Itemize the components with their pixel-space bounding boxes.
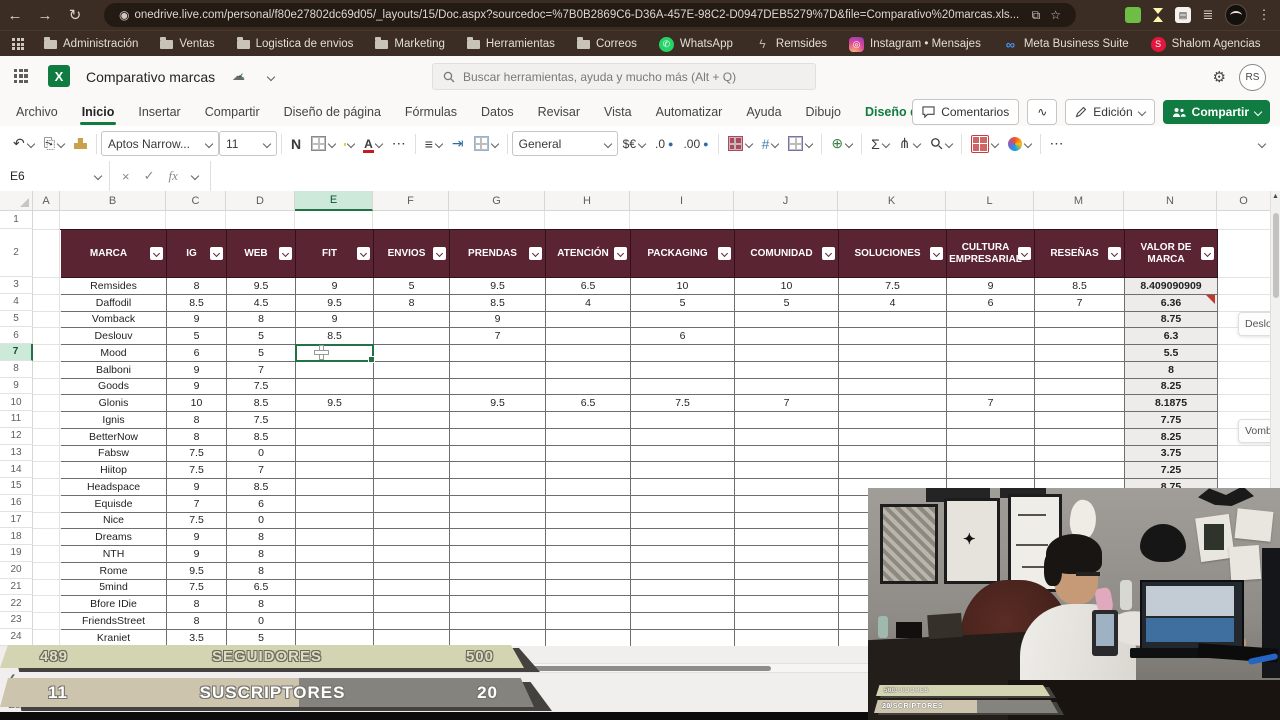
cell-I15[interactable] [631,479,735,496]
cell-F6[interactable] [374,328,450,345]
cell-I11[interactable] [631,412,735,429]
row-header-21[interactable]: 21 [0,579,33,596]
cell-G9[interactable] [450,379,546,396]
tracking-protection-icon[interactable]: ◉ [119,8,129,22]
filter-button[interactable] [614,247,627,260]
cell-M8[interactable] [1035,362,1125,379]
cell-C13[interactable]: 7.5 [167,446,227,463]
cell-G18[interactable] [450,529,546,546]
cell-B4[interactable]: Daffodil [61,295,167,312]
column-header-J[interactable]: J [734,191,838,211]
cell-I24[interactable] [631,630,735,647]
cell-M7[interactable] [1035,345,1125,362]
tab-insertar[interactable]: Insertar [136,101,182,123]
cell-G13[interactable] [450,446,546,463]
row-header-10[interactable]: 10 [0,394,33,411]
cell-L9[interactable] [947,379,1035,396]
cell-H17[interactable] [546,513,631,530]
cell-E8[interactable] [296,362,374,379]
cell-E18[interactable] [296,529,374,546]
extension-hourglass-icon[interactable] [1150,7,1166,23]
cell-G21[interactable] [450,580,546,597]
tab-fórmulas[interactable]: Fórmulas [403,101,459,123]
cell-H8[interactable] [546,362,631,379]
cell-K7[interactable] [839,345,947,362]
cell-E3[interactable]: 9 [296,278,374,295]
conditional-formatting-button[interactable]: # [757,136,784,152]
settings-gear-icon[interactable]: ⚙ [1213,68,1226,86]
cell-D20[interactable]: 8 [227,563,296,580]
cell-E4[interactable]: 9.5 [296,295,374,312]
cell-D19[interactable]: 8 [227,546,296,563]
cell-G17[interactable] [450,513,546,530]
title-chevron-icon[interactable] [267,73,275,81]
cell-D17[interactable]: 0 [227,513,296,530]
row-header-20[interactable]: 20 [0,562,33,579]
cell-I21[interactable] [631,580,735,597]
row-header-19[interactable]: 19 [0,545,33,562]
cell-G15[interactable] [450,479,546,496]
cell-L5[interactable] [947,312,1035,329]
cell-H9[interactable] [546,379,631,396]
row-header-7[interactable]: 7 [0,344,33,361]
row-header-3[interactable]: 3 [0,277,33,294]
cell-C20[interactable]: 9.5 [167,563,227,580]
cell-E15[interactable] [296,479,374,496]
cell-B11[interactable]: Ignis [61,412,167,429]
cell-E6[interactable]: 8.5 [296,328,374,345]
insert-cells-button[interactable]: ⊕ [826,135,857,152]
reload-icon[interactable]: ↻ [60,6,90,24]
cell-B6[interactable]: Deslouv [61,328,167,345]
cell-I5[interactable] [631,312,735,329]
cell-I14[interactable] [631,462,735,479]
cell-N8[interactable]: 8 [1125,362,1218,379]
cell-F12[interactable] [374,429,450,446]
number-format-select[interactable]: General [512,131,618,156]
cell-J8[interactable] [735,362,839,379]
cell-G23[interactable] [450,613,546,630]
cell-B5[interactable]: Vomback [61,312,167,329]
row-header-8[interactable]: 8 [0,361,33,378]
bookmark-logistica[interactable]: Logistica de envios [237,38,354,50]
decrease-decimal-button[interactable]: .0● [650,137,678,151]
cell-K12[interactable] [839,429,947,446]
cell-N4[interactable]: 6.36 [1125,295,1218,312]
cell-C15[interactable]: 9 [167,479,227,496]
cell-F10[interactable] [374,395,450,412]
column-header-N[interactable]: N [1124,191,1217,211]
cell-I18[interactable] [631,529,735,546]
cell-I13[interactable] [631,446,735,463]
cell-L14[interactable] [947,462,1035,479]
cell-E13[interactable] [296,446,374,463]
bookmark-instagram[interactable]: ◎Instagram • Mensajes [849,37,981,52]
cell-F22[interactable] [374,596,450,613]
cell-H4[interactable]: 4 [546,295,631,312]
table-header-envios[interactable]: ENVIOS [374,230,450,278]
filter-button[interactable] [433,247,446,260]
cell-N14[interactable]: 7.25 [1125,462,1218,479]
font-color-button[interactable]: A [359,137,387,151]
cell-K3[interactable]: 7.5 [839,278,947,295]
cell-J21[interactable] [735,580,839,597]
undo-button[interactable]: ↶ [8,135,39,152]
cell-G24[interactable] [450,630,546,647]
filter-button[interactable] [1018,247,1031,260]
row-header-18[interactable]: 18 [0,528,33,545]
cell-K4[interactable]: 4 [839,295,947,312]
cell-D24[interactable]: 5 [227,630,296,647]
cell-J24[interactable] [735,630,839,647]
cell-styles-button[interactable] [783,136,817,151]
cell-F3[interactable]: 5 [374,278,450,295]
cell-I17[interactable] [631,513,735,530]
cell-E9[interactable] [296,379,374,396]
enter-icon[interactable]: ✓ [144,168,155,184]
table-header-soluciones[interactable]: SOLUCIONES [839,230,947,278]
cell-I23[interactable] [631,613,735,630]
apps-grid-icon[interactable] [12,38,24,50]
more-font-options[interactable]: ⋯ [387,135,411,152]
cell-F15[interactable] [374,479,450,496]
bookmark-remsides[interactable]: ϟRemsides [755,37,827,52]
cell-K9[interactable] [839,379,947,396]
filter-button[interactable] [930,247,943,260]
fill-handle[interactable] [368,356,375,363]
table-header-comunidad[interactable]: COMUNIDAD [735,230,839,278]
cell-F8[interactable] [374,362,450,379]
filter-button[interactable] [529,247,542,260]
tab-compartir[interactable]: Compartir [203,101,262,123]
cell-E11[interactable] [296,412,374,429]
cell-I8[interactable] [631,362,735,379]
cell-D13[interactable]: 0 [227,446,296,463]
column-header-O[interactable]: O [1217,191,1271,211]
cell-B15[interactable]: Headspace [61,479,167,496]
cell-M10[interactable] [1035,395,1125,412]
cell-B3[interactable]: Remsides [61,278,167,295]
table-header-reseñas[interactable]: RESEÑAS [1035,230,1125,278]
fill-color-button[interactable] [340,141,359,147]
cancel-icon[interactable]: × [122,169,130,184]
column-header-K[interactable]: K [838,191,946,211]
toolbar-overflow-button[interactable]: ⋯ [1045,135,1069,152]
bookmark-whatsapp[interactable]: ✆WhatsApp [659,37,733,52]
cell-G12[interactable] [450,429,546,446]
cell-H13[interactable] [546,446,631,463]
cell-L13[interactable] [947,446,1035,463]
merge-cells-button[interactable] [469,136,503,151]
cell-D10[interactable]: 8.5 [227,395,296,412]
cell-D18[interactable]: 8 [227,529,296,546]
cell-B16[interactable]: Equisde [61,496,167,513]
collapse-ribbon-icon[interactable] [1254,141,1270,147]
cell-C10[interactable]: 10 [167,395,227,412]
sort-filter-button[interactable]: ⋔ [894,135,925,152]
tab-vista[interactable]: Vista [602,101,634,123]
cell-E22[interactable] [296,596,374,613]
cell-G8[interactable] [450,362,546,379]
column-header-D[interactable]: D [226,191,295,211]
cell-J13[interactable] [735,446,839,463]
browser-profile-avatar[interactable] [1225,4,1247,26]
cell-B8[interactable]: Balboni [61,362,167,379]
cell-E23[interactable] [296,613,374,630]
cell-I19[interactable] [631,546,735,563]
cell-I22[interactable] [631,596,735,613]
cell-D8[interactable]: 7 [227,362,296,379]
find-button[interactable] [925,137,957,150]
row-header-24[interactable]: 24 [0,629,33,646]
cell-B12[interactable]: BetterNow [61,429,167,446]
cell-C21[interactable]: 7.5 [167,580,227,597]
cell-E10[interactable]: 9.5 [296,395,374,412]
bookmark-ventas[interactable]: Ventas [160,38,214,50]
address-bar[interactable]: ◉ onedrive.live.com/personal/f80e27802dc… [104,3,1076,27]
cell-G3[interactable]: 9.5 [450,278,546,295]
cell-E20[interactable] [296,563,374,580]
cell-B21[interactable]: 5mind [61,580,167,597]
cell-C7[interactable]: 6 [167,345,227,362]
extension-green-icon[interactable] [1125,7,1141,23]
cell-H11[interactable] [546,412,631,429]
cell-F18[interactable] [374,529,450,546]
row-header-11[interactable]: 11 [0,411,33,428]
cell-N7[interactable]: 5.5 [1125,345,1218,362]
cell-J23[interactable] [735,613,839,630]
cell-L4[interactable]: 6 [947,295,1035,312]
column-header-G[interactable]: G [449,191,545,211]
extension-clipboard-icon[interactable]: ▤ [1175,7,1191,23]
filter-button[interactable] [1201,247,1214,260]
cell-D5[interactable]: 8 [227,312,296,329]
cell-B17[interactable]: Nice [61,513,167,530]
copy-link-icon[interactable]: ⧉ [1032,8,1041,23]
share-button[interactable]: Compartir [1163,100,1270,124]
row-header-13[interactable]: 13 [0,445,33,462]
cell-I4[interactable]: 5 [631,295,735,312]
cell-I3[interactable]: 10 [631,278,735,295]
cell-M14[interactable] [1035,462,1125,479]
cell-H16[interactable] [546,496,631,513]
column-header-I[interactable]: I [630,191,734,211]
cell-G19[interactable] [450,546,546,563]
copilot-button[interactable] [1003,137,1036,151]
cell-D21[interactable]: 6.5 [227,580,296,597]
cell-D7[interactable]: 5 [227,345,296,362]
tab-diseño-de-página[interactable]: Diseño de página [282,101,383,123]
cell-B20[interactable]: Rome [61,563,167,580]
column-header-E[interactable]: E [295,191,373,211]
column-header-B[interactable]: B [60,191,166,211]
search-box[interactable]: Buscar herramientas, ayuda y mucho más (… [432,63,816,90]
row-header-16[interactable]: 16 [0,495,33,512]
cell-H21[interactable] [546,580,631,597]
cell-G6[interactable]: 7 [450,328,546,345]
bookmark-meta[interactable]: ∞Meta Business Suite [1003,37,1129,52]
editing-mode-button[interactable]: Edición [1065,99,1154,125]
cell-E19[interactable] [296,546,374,563]
table-header-web[interactable]: WEB [227,230,296,278]
cell-K14[interactable] [839,462,947,479]
cell-C5[interactable]: 9 [167,312,227,329]
cell-F23[interactable] [374,613,450,630]
cell-J15[interactable] [735,479,839,496]
font-size-select[interactable]: 11 [219,131,277,156]
cell-M12[interactable] [1035,429,1125,446]
cell-H22[interactable] [546,596,631,613]
cell-D12[interactable]: 8.5 [227,429,296,446]
name-box[interactable]: E6 [0,161,110,191]
cell-H12[interactable] [546,429,631,446]
cell-F13[interactable] [374,446,450,463]
tab-automatizar[interactable]: Automatizar [654,101,725,123]
cell-J4[interactable]: 5 [735,295,839,312]
cell-J10[interactable]: 7 [735,395,839,412]
cell-D23[interactable]: 0 [227,613,296,630]
cell-C14[interactable]: 7.5 [167,462,227,479]
cell-J20[interactable] [735,563,839,580]
tab-revisar[interactable]: Revisar [536,101,582,123]
row-header-15[interactable]: 15 [0,478,33,495]
cell-H15[interactable] [546,479,631,496]
cell-H20[interactable] [546,563,631,580]
back-icon[interactable]: ← [0,7,30,24]
autosum-button[interactable]: Σ [866,136,894,152]
row-header-2[interactable]: 2 [0,229,33,277]
cell-K8[interactable] [839,362,947,379]
table-header-ig[interactable]: IG [167,230,227,278]
cell-B22[interactable]: Bfore IDie [61,596,167,613]
currency-format-button[interactable]: $€ [618,137,650,151]
wrap-text-button[interactable]: ⇥ [447,135,469,152]
document-title[interactable]: Comparativo marcas [86,69,215,85]
cell-B18[interactable]: Dreams [61,529,167,546]
cell-L8[interactable] [947,362,1035,379]
bookmark-administracion[interactable]: Administración [44,38,138,50]
cell-H14[interactable] [546,462,631,479]
cell-C11[interactable]: 8 [167,412,227,429]
cell-M5[interactable] [1035,312,1125,329]
cell-L6[interactable] [947,328,1035,345]
filter-button[interactable] [210,247,223,260]
row-header-4[interactable]: 4 [0,294,33,311]
cell-H6[interactable] [546,328,631,345]
cell-K6[interactable] [839,328,947,345]
cell-N12[interactable]: 8.25 [1125,429,1218,446]
table-header-fit[interactable]: FIT [296,230,374,278]
cell-J12[interactable] [735,429,839,446]
row-header-14[interactable]: 14 [0,461,33,478]
cell-C12[interactable]: 8 [167,429,227,446]
cell-F20[interactable] [374,563,450,580]
bookmark-correos[interactable]: Correos [577,38,637,50]
cell-F19[interactable] [374,546,450,563]
cell-K10[interactable] [839,395,947,412]
catch-up-button[interactable]: ∿ [1027,99,1057,125]
cell-H18[interactable] [546,529,631,546]
cell-G4[interactable]: 8.5 [450,295,546,312]
cell-B19[interactable]: NTH [61,546,167,563]
cell-D4[interactable]: 4.5 [227,295,296,312]
cell-E14[interactable] [296,462,374,479]
cell-E24[interactable] [296,630,374,647]
column-header-A[interactable]: A [33,191,60,211]
cell-B14[interactable]: Hiitop [61,462,167,479]
row-header-5[interactable]: 5 [0,311,33,328]
cell-H5[interactable] [546,312,631,329]
filter-button[interactable] [357,247,370,260]
cell-J3[interactable]: 10 [735,278,839,295]
cell-K13[interactable] [839,446,947,463]
cell-J6[interactable] [735,328,839,345]
cell-J11[interactable] [735,412,839,429]
cell-I16[interactable] [631,496,735,513]
cell-M9[interactable] [1035,379,1125,396]
cell-D3[interactable]: 9.5 [227,278,296,295]
cell-L11[interactable] [947,412,1035,429]
select-all-corner[interactable] [0,191,33,211]
column-header-L[interactable]: L [946,191,1034,211]
cell-D9[interactable]: 7.5 [227,379,296,396]
cell-J19[interactable] [735,546,839,563]
format-painter-button[interactable] [69,138,92,149]
cell-I20[interactable] [631,563,735,580]
paste-button[interactable]: ⎘ [39,135,69,152]
cell-G14[interactable] [450,462,546,479]
cell-G10[interactable]: 9.5 [450,395,546,412]
account-avatar[interactable]: RS [1239,64,1266,91]
row-header-9[interactable]: 9 [0,378,33,395]
cell-F16[interactable] [374,496,450,513]
cell-C24[interactable]: 3.5 [167,630,227,647]
cell-I7[interactable] [631,345,735,362]
cell-L7[interactable] [947,345,1035,362]
cell-E12[interactable] [296,429,374,446]
cell-K11[interactable] [839,412,947,429]
increase-decimal-button[interactable]: .00● [678,137,713,151]
cell-F4[interactable]: 8 [374,295,450,312]
filter-button[interactable] [1108,247,1121,260]
cell-E21[interactable] [296,580,374,597]
cell-B13[interactable]: Fabsw [61,446,167,463]
cell-H19[interactable] [546,546,631,563]
cell-C9[interactable]: 9 [167,379,227,396]
table-header-valor-de-marca[interactable]: VALOR DE MARCA [1125,230,1218,278]
cell-B7[interactable]: Mood [61,345,167,362]
cell-F9[interactable] [374,379,450,396]
scroll-up-icon[interactable]: ▲ [1272,193,1279,200]
row-header-22[interactable]: 22 [0,595,33,612]
tab-archivo[interactable]: Archivo [14,101,60,123]
cell-I10[interactable]: 7.5 [631,395,735,412]
cell-K5[interactable] [839,312,947,329]
cell-I12[interactable] [631,429,735,446]
cell-G11[interactable] [450,412,546,429]
cell-F24[interactable] [374,630,450,647]
cell-D22[interactable]: 8 [227,596,296,613]
tab-datos[interactable]: Datos [479,101,516,123]
borders-button[interactable] [306,136,340,151]
cell-J7[interactable] [735,345,839,362]
cell-C6[interactable]: 5 [167,328,227,345]
row-header-1[interactable]: 1 [0,211,33,229]
cell-E16[interactable] [296,496,374,513]
sensitivity-button[interactable] [966,135,1003,153]
cell-C19[interactable]: 9 [167,546,227,563]
cell-N11[interactable]: 7.75 [1125,412,1218,429]
